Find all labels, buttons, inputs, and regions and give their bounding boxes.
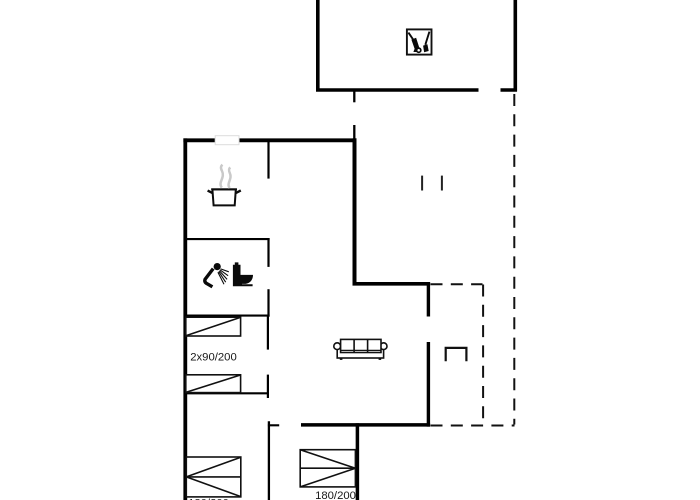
svg-text:180/200: 180/200 (315, 490, 356, 500)
svg-text:2x90/200: 2x90/200 (190, 351, 236, 363)
